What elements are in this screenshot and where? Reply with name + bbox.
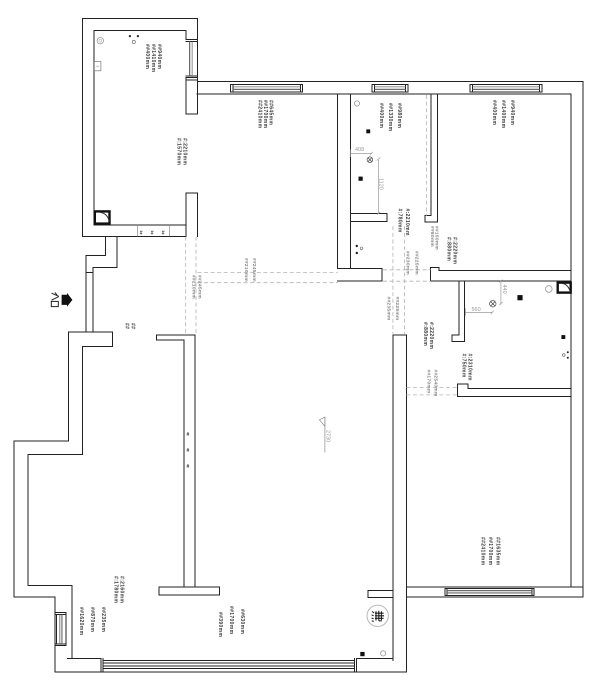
svg-text:##870mm: ##870mm [89, 607, 95, 632]
svg-text:##2410mm: ##2410mm [257, 100, 263, 129]
svg-text:#:880mm: #:880mm [422, 322, 428, 346]
svg-text:##390mm: ##390mm [217, 612, 223, 637]
svg-text:#:2310mm: #:2310mm [467, 354, 473, 381]
svg-text:#:750mm: #:750mm [461, 354, 467, 378]
svg-text:##230mm: ##230mm [405, 251, 411, 275]
svg-text:#:2210mm: #:2210mm [182, 138, 188, 165]
svg-text:560: 560 [472, 307, 481, 313]
svg-text:#:780mm: #:780mm [396, 209, 402, 233]
svg-text:##645mm: ##645mm [268, 100, 274, 125]
svg-text:##210mm: ##210mm [191, 275, 197, 299]
svg-text:#:2160mm: #:2160mm [119, 576, 125, 603]
svg-text:##1400mm: ##1400mm [500, 100, 506, 129]
svg-text:##225mm: ##225mm [414, 251, 420, 275]
svg-text:#: # [187, 464, 190, 470]
svg-text:##1700mm: ##1700mm [228, 606, 234, 635]
svg-text:##150mm: ##150mm [433, 226, 439, 250]
svg-text:#: # [162, 231, 165, 237]
svg-text:#:2220mm: #:2220mm [452, 237, 458, 264]
svg-text:#:2220mm: #:2220mm [428, 322, 434, 349]
svg-text:##1635mm: ##1635mm [495, 537, 501, 566]
svg-text:##1410mm: ##1410mm [150, 44, 156, 73]
svg-text:#:1570mm: #:1570mm [176, 138, 182, 165]
svg-text:##400mm: ##400mm [491, 100, 497, 125]
svg-text:##980mm: ##980mm [396, 103, 402, 128]
svg-text:408: 408 [355, 147, 364, 153]
svg-text:##400mm: ##400mm [144, 44, 150, 69]
svg-text:##235mm: ##235mm [386, 297, 392, 321]
svg-text:##1330mm: ##1330mm [387, 103, 393, 132]
svg-text:#: # [151, 231, 154, 237]
svg-text:##225mm: ##225mm [394, 297, 400, 321]
svg-text:##940mm: ##940mm [156, 44, 162, 69]
svg-text:1120: 1120 [378, 178, 384, 190]
svg-text:##2540mm: ##2540mm [433, 370, 439, 397]
svg-text:##400mm: ##400mm [378, 103, 384, 128]
svg-text:##245mm: ##245mm [197, 275, 203, 299]
svg-text:##1700mm: ##1700mm [487, 537, 493, 566]
svg-text:##630mm: ##630mm [239, 609, 245, 634]
svg-text:##1700mm: ##1700mm [262, 100, 268, 129]
svg-text:440: 440 [501, 285, 507, 294]
svg-text:#:880mm: #:880mm [446, 237, 452, 261]
svg-text:2730: 2730 [325, 430, 331, 442]
svg-text:##1620mm: ##1620mm [78, 607, 84, 636]
svg-text:#: # [187, 432, 190, 438]
svg-text:#:2210mm: #:2210mm [404, 209, 410, 236]
svg-text:##210mm: ##210mm [243, 258, 249, 282]
svg-text:#: # [187, 448, 190, 454]
svg-text:##: ## [130, 323, 136, 329]
svg-text:##: ## [124, 323, 130, 329]
svg-text:##235mm: ##235mm [100, 607, 106, 632]
svg-text:##170mm: ##170mm [426, 370, 432, 394]
svg-text:##2410mm: ##2410mm [480, 537, 486, 566]
svg-text:#: # [140, 231, 143, 237]
svg-text:##940mm: ##940mm [509, 100, 515, 125]
svg-text:#:1780mm: #:1780mm [113, 576, 119, 603]
svg-text:##245mm: ##245mm [251, 258, 257, 282]
